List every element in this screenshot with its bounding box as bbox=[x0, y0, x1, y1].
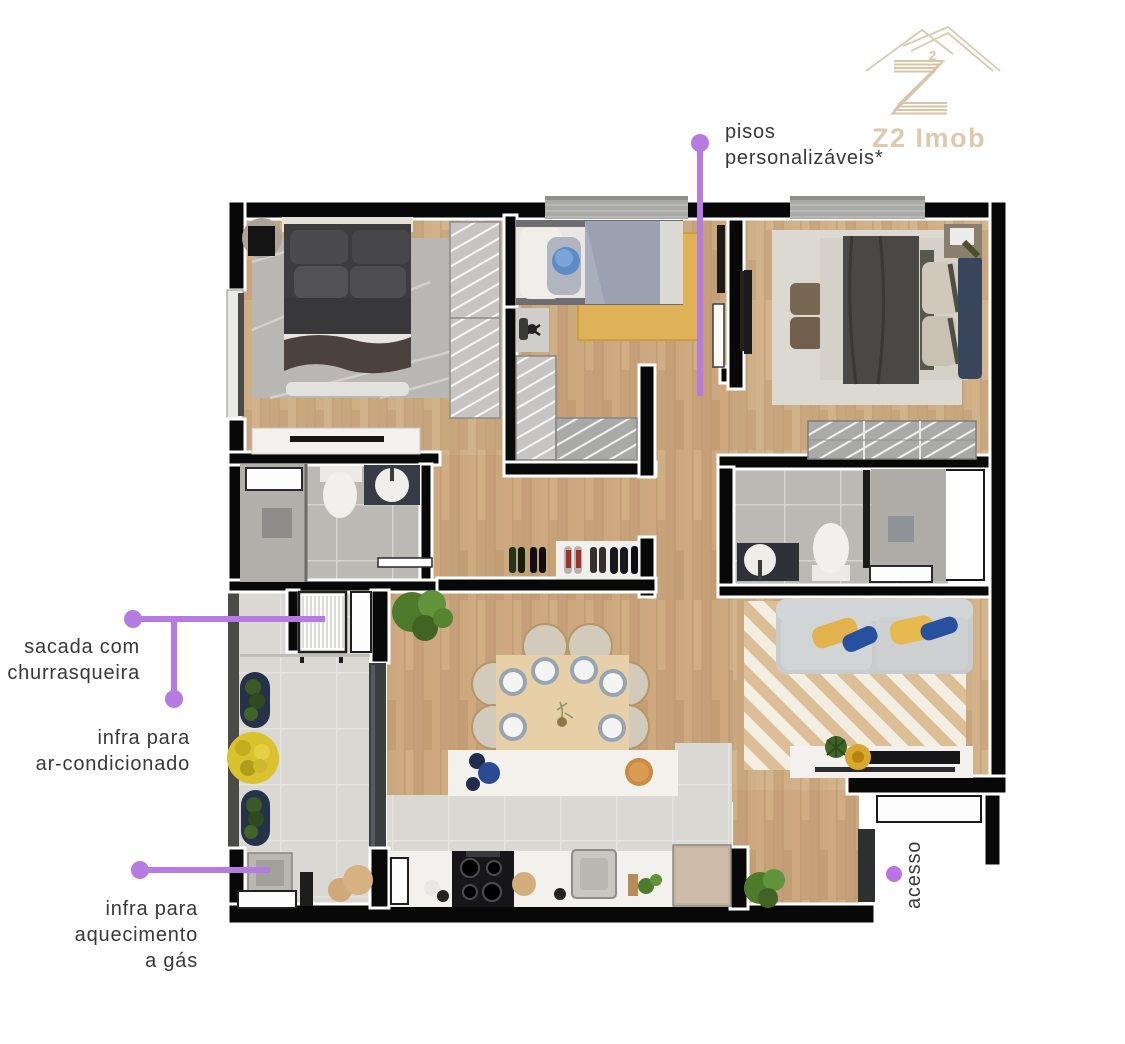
svg-text:2: 2 bbox=[929, 48, 936, 63]
svg-text:Z2 Imob: Z2 Imob bbox=[872, 123, 986, 153]
